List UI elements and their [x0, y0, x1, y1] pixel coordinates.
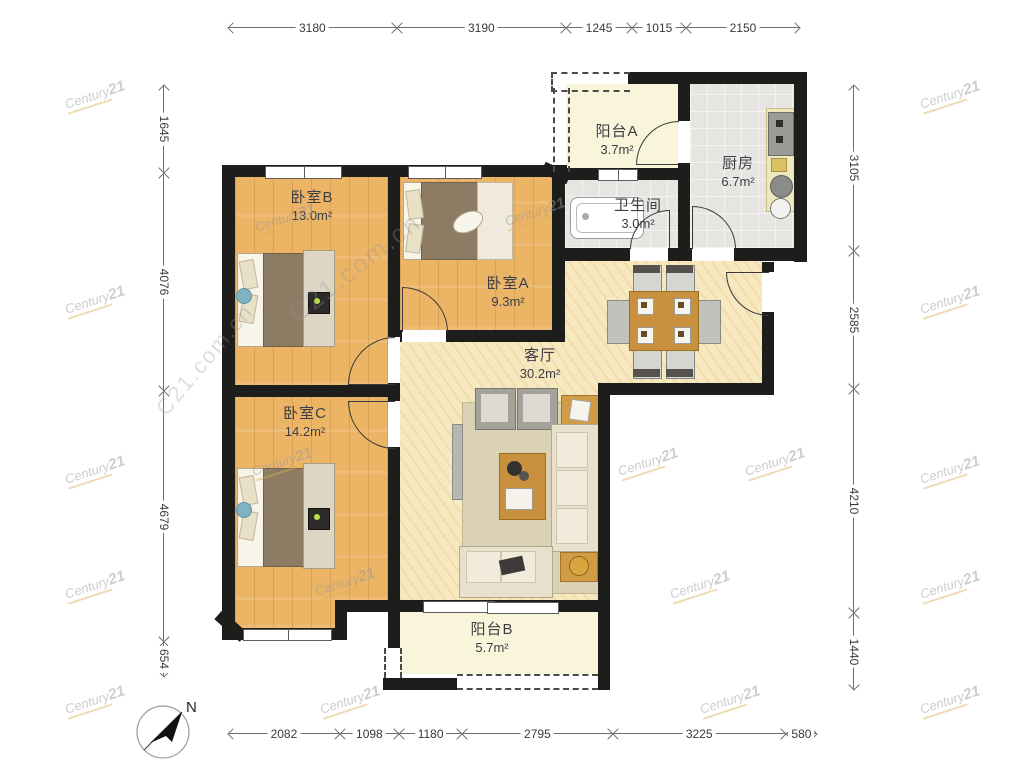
- arrowhead-icon: [339, 728, 350, 739]
- dimension-value: 4076: [157, 266, 171, 299]
- wall: [222, 385, 400, 397]
- room-label-bedroom-c: 卧室C 14.2m²: [283, 402, 327, 439]
- arrowhead-icon: [462, 728, 473, 739]
- dimension-value: 2585: [847, 303, 861, 336]
- wall: [598, 383, 610, 690]
- room-name: 阳台B: [470, 618, 513, 639]
- room-area: 6.7m²: [721, 174, 754, 189]
- arrowhead-icon: [848, 679, 859, 690]
- dimension-ruler-left: 164540764679654: [152, 85, 176, 677]
- floor-bedroom-c: [235, 600, 335, 628]
- dimension-value: 1245: [583, 21, 616, 35]
- wall: [598, 383, 774, 395]
- tv-dot: [314, 298, 320, 304]
- plate-dot: [641, 331, 647, 337]
- dimension-value: 1098: [353, 727, 386, 741]
- dimension-value: 1180: [415, 727, 447, 741]
- window: [243, 629, 332, 641]
- wall: [383, 678, 457, 690]
- utensil-holder: [771, 158, 787, 172]
- bed-cushion: [236, 288, 252, 304]
- century21-watermark: Century21: [918, 282, 982, 317]
- sofa-cushion: [466, 551, 501, 583]
- room-area: 14.2m²: [283, 424, 327, 439]
- century21-watermark: Century21: [616, 444, 680, 479]
- sofa-cushion: [556, 470, 588, 506]
- room-name: 卧室C: [283, 402, 327, 423]
- century21-watermark: Century21: [63, 682, 127, 717]
- lamp: [569, 399, 592, 423]
- dimension-segment: 1440: [842, 613, 866, 690]
- dining-chair: [697, 300, 721, 344]
- wall: [628, 72, 807, 84]
- chair-back: [633, 369, 660, 377]
- dimension-value: 2795: [521, 727, 554, 741]
- room-name: 厨房: [721, 152, 754, 173]
- window-mullion: [618, 170, 619, 180]
- coffee-table-dot: [519, 471, 529, 481]
- dimension-segment: 1015: [632, 16, 686, 40]
- room-label-bedroom-b: 卧室B 13.0m²: [290, 186, 333, 223]
- dimension-value: 3190: [465, 21, 498, 35]
- arrowhead-icon: [227, 22, 238, 33]
- bed-duvet: [263, 253, 305, 347]
- tv-dot: [314, 514, 320, 520]
- sliding-door: [423, 601, 495, 613]
- century21-watermark: Century21: [918, 452, 982, 487]
- balcony-b-dashed-edge: [457, 674, 598, 690]
- arrowhead-icon: [158, 84, 169, 95]
- wall: [222, 165, 235, 640]
- bathtub-drain: [582, 213, 589, 220]
- sliding-door: [487, 602, 559, 614]
- room-label-balcony-a: 阳台A 3.7m²: [595, 120, 638, 157]
- room-label-bathroom: 卫生间 3.0m²: [614, 194, 662, 231]
- sink-dot: [776, 136, 783, 143]
- floorplan-page: 31803190124510152150 2082109811802795322…: [0, 0, 1024, 768]
- door-opening: [692, 248, 734, 261]
- tv-bench: [452, 424, 463, 500]
- wall: [552, 165, 565, 342]
- dimension-segment: 3190: [397, 16, 566, 40]
- room-label-bedroom-a: 卧室A 9.3m²: [486, 272, 529, 309]
- arrowhead-icon: [848, 84, 859, 95]
- arrowhead-icon: [612, 728, 623, 739]
- arrowhead-icon: [227, 728, 238, 739]
- arrowhead-icon: [685, 22, 696, 33]
- dimension-segment: 1645: [152, 85, 176, 173]
- century21-watermark: Century21: [63, 77, 127, 112]
- dimension-segment: 2795: [462, 722, 612, 746]
- room-name: 卧室B: [290, 186, 333, 207]
- dimension-segment: 3105: [842, 85, 866, 251]
- century21-watermark: Century21: [318, 682, 382, 717]
- dining-chair: [607, 300, 631, 344]
- arrowhead-icon: [158, 172, 169, 183]
- room-label-kitchen: 厨房 6.7m²: [721, 152, 754, 189]
- century21-watermark: Century21: [918, 567, 982, 602]
- door-opening: [678, 121, 690, 163]
- door-opening: [630, 248, 668, 261]
- window: [408, 166, 482, 179]
- north-label: N: [186, 699, 197, 716]
- dimension-value: 580: [788, 727, 814, 741]
- room-area: 9.3m²: [486, 294, 529, 309]
- dimension-value: 3105: [847, 151, 861, 184]
- dimension-segment: 1180: [399, 722, 462, 746]
- century21-watermark: Century21: [63, 567, 127, 602]
- century21-watermark: Century21: [668, 567, 732, 602]
- room-label-living-room: 客厅 30.2m²: [520, 344, 560, 381]
- arrowhead-icon: [398, 728, 409, 739]
- arrowhead-icon: [158, 391, 169, 402]
- arrowhead-icon: [631, 22, 642, 33]
- dimension-segment: 1245: [566, 16, 632, 40]
- north-compass: N: [126, 690, 208, 764]
- wall: [678, 84, 690, 260]
- chair-back: [666, 369, 693, 377]
- armchair-cushion: [523, 394, 550, 422]
- dimension-segment: 2082: [228, 722, 340, 746]
- century21-watermark: Century21: [918, 682, 982, 717]
- arrowhead-icon: [789, 22, 800, 33]
- dimension-value: 654: [157, 646, 171, 672]
- bed-duvet: [263, 468, 305, 567]
- arrowhead-icon: [848, 250, 859, 261]
- century21-watermark: Century21: [918, 77, 982, 112]
- dimension-ruler-right: 3105258542101440: [842, 85, 866, 690]
- dimension-segment: 580: [786, 722, 817, 746]
- sofa-cushion: [556, 508, 588, 544]
- window: [598, 169, 638, 181]
- balcony-a-dashed-edge: [553, 88, 570, 172]
- arrowhead-icon: [848, 613, 859, 624]
- arrowhead-icon: [565, 22, 576, 33]
- room-area: 5.7m²: [470, 640, 513, 655]
- dimension-segment: 3225: [613, 722, 786, 746]
- dish: [569, 556, 589, 576]
- room-area: 13.0m²: [290, 208, 333, 223]
- dimension-segment: 1098: [340, 722, 399, 746]
- room-name: 阳台A: [595, 120, 638, 141]
- dimension-value: 2150: [727, 21, 760, 35]
- room-name: 卫生间: [614, 194, 662, 215]
- room-name: 客厅: [520, 344, 560, 365]
- dimension-value: 2082: [268, 727, 301, 741]
- dimension-value: 4210: [847, 485, 861, 518]
- arrowhead-icon: [848, 388, 859, 399]
- dimension-ruler-top: 31803190124510152150: [228, 16, 800, 40]
- plate-dot: [641, 302, 647, 308]
- plate-dot: [678, 302, 684, 308]
- dimension-ruler-bottom: 20821098118027953225580: [228, 722, 817, 746]
- sink-dot: [776, 120, 783, 127]
- window: [265, 166, 342, 179]
- dimension-segment: 2150: [686, 16, 800, 40]
- dimension-segment: 4679: [152, 391, 176, 642]
- room-name: 卧室A: [486, 272, 529, 293]
- century21-watermark: Century21: [63, 282, 127, 317]
- kettle: [770, 198, 791, 219]
- kitchen-sink-unit: [768, 112, 794, 156]
- dimension-segment: 2585: [842, 251, 866, 389]
- chair-back: [666, 265, 693, 273]
- window-mullion: [445, 167, 446, 178]
- window-mullion: [304, 167, 305, 178]
- bed-cushion: [236, 502, 252, 518]
- window-mullion: [288, 630, 289, 640]
- tray: [505, 488, 533, 510]
- room-area: 30.2m²: [520, 366, 560, 381]
- dimension-segment: 4076: [152, 173, 176, 391]
- wall: [794, 72, 807, 262]
- dimension-segment: 3180: [228, 16, 397, 40]
- dimension-value: 1015: [643, 21, 676, 35]
- dimension-value: 1645: [157, 113, 171, 146]
- arrowhead-icon: [396, 22, 407, 33]
- balcony-b-dashed-edge: [384, 648, 402, 678]
- century21-watermark: Century21: [743, 444, 807, 479]
- sofa-cushion: [556, 432, 588, 468]
- chair-back: [633, 265, 660, 273]
- dimension-value: 1440: [847, 635, 861, 668]
- room-area: 3.0m²: [614, 216, 662, 231]
- armchair-cushion: [481, 394, 508, 422]
- stove-burner: [770, 175, 793, 198]
- dimension-value: 3180: [296, 21, 329, 35]
- dimension-segment: 654: [152, 642, 176, 677]
- plate-dot: [678, 331, 684, 337]
- century21-watermark: Century21: [63, 452, 127, 487]
- dimension-segment: 4210: [842, 389, 866, 614]
- dimension-value: 3225: [683, 727, 716, 741]
- century21-watermark: Century21: [698, 682, 762, 717]
- room-area: 3.7m²: [595, 142, 638, 157]
- room-label-balcony-b: 阳台B 5.7m²: [470, 618, 513, 655]
- dimension-value: 4679: [157, 500, 171, 533]
